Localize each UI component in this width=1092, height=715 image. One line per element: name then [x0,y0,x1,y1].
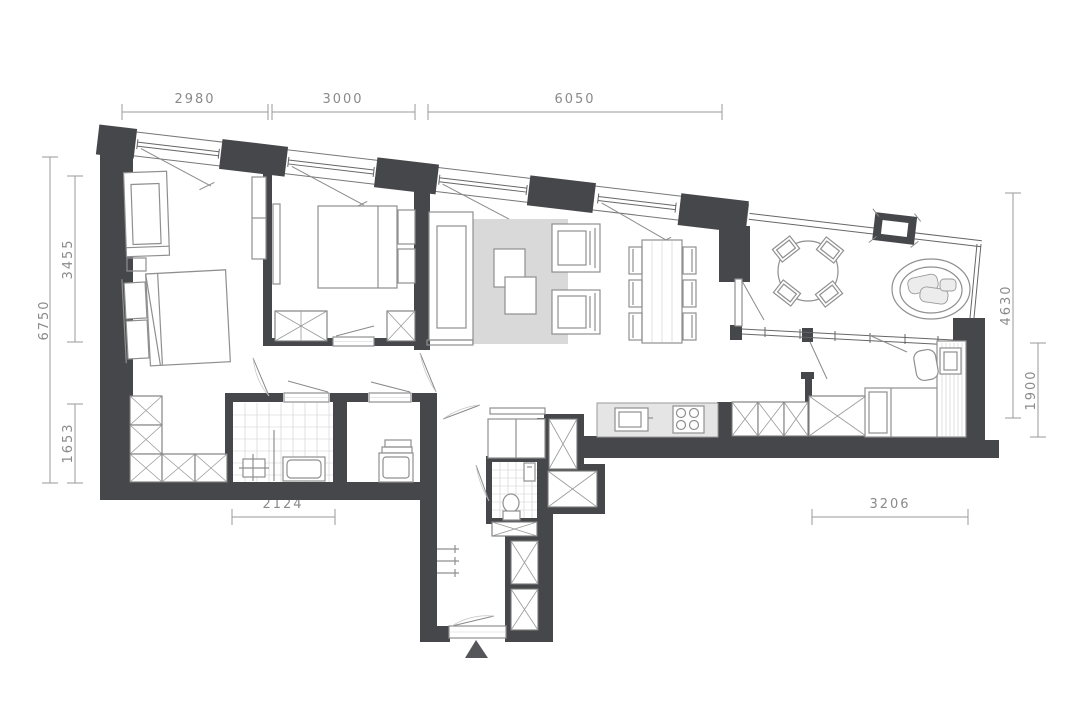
door-bathroom [288,381,328,392]
right-wing [732,335,966,437]
mirror [273,204,280,284]
wall-wc [486,456,492,524]
shelf [382,447,412,453]
lounge-chair [124,171,170,256]
terrace-railing [742,327,953,346]
wall-hall-left [420,396,437,642]
wall-partition-post [801,372,814,379]
coffee-table [505,277,536,314]
wall-bottom-left [100,482,420,500]
wall-bath-laundry [333,400,347,483]
cooktop [673,406,704,433]
living-room [427,212,696,345]
wall-railing-post [730,325,742,340]
wardrobe-bedroom1 [130,396,227,482]
toilet [503,494,519,512]
wc-sink [524,463,535,481]
shelf [385,440,411,447]
desk-chair [913,348,940,381]
door-bedroom1 [253,358,269,396]
floorplan-drawing: 2980 3000 6050 6750 3455 1653 4630 1900 … [0,0,1092,715]
dim-left-total: 6750 [37,299,52,340]
floorplan-canvas: 2980 3000 6050 6750 3455 1653 4630 1900 … [0,0,1092,715]
bathroom [233,403,333,482]
wall-partition-post [802,328,813,342]
terrace-door-frame [735,279,742,326]
double-bed-1 [122,270,231,367]
shelf-over-cupboard [490,408,545,414]
door-laundry [371,382,410,392]
entrance-hall [437,405,597,658]
dim-top-3: 6050 [554,92,595,107]
wall-bath-north [225,393,283,402]
armchair [552,290,600,334]
terrace-framed-window [869,209,922,249]
dim-right-total: 4630 [999,284,1014,325]
bedroom-1 [122,171,266,482]
dim-bottom-right: 3206 [869,497,910,512]
wall-living-west [414,188,430,350]
entrance-marker-icon [465,640,488,658]
door-corridor [420,353,436,392]
wall-kitchen-stub [717,402,733,438]
wall-tv [940,348,961,374]
door-hall [443,405,480,419]
wall-bottom-right [553,436,985,458]
wall-right-foot [953,440,999,458]
terrace-right-edge [970,244,981,318]
dim-top-1: 2980 [174,92,215,107]
kitchen [597,403,718,437]
dim-left-upper: 3455 [61,238,76,279]
laundry-room [379,440,413,482]
single-bed [865,388,939,437]
dim-top-2: 3000 [322,92,363,107]
facade-pier [219,139,288,177]
sofa [427,212,473,345]
dining-table [642,240,682,343]
wardrobe-right-wing [732,396,866,436]
door-bedroom2 [336,326,374,336]
bedroom-2 [273,204,415,341]
terrace [735,236,970,326]
wall-hall-bottom [432,626,450,642]
double-bed-2 [318,206,415,288]
coat-hooks [437,545,459,577]
wall-bath-north [412,393,437,402]
facade-pier [527,175,596,213]
terrace-door [742,281,764,320]
wall-pier-leg [719,226,750,282]
dim-left-lower: 1653 [61,422,76,463]
armchair [552,224,600,272]
walls [100,144,999,642]
egg-chair [892,259,970,319]
dim-right-lower: 1900 [1024,369,1039,410]
